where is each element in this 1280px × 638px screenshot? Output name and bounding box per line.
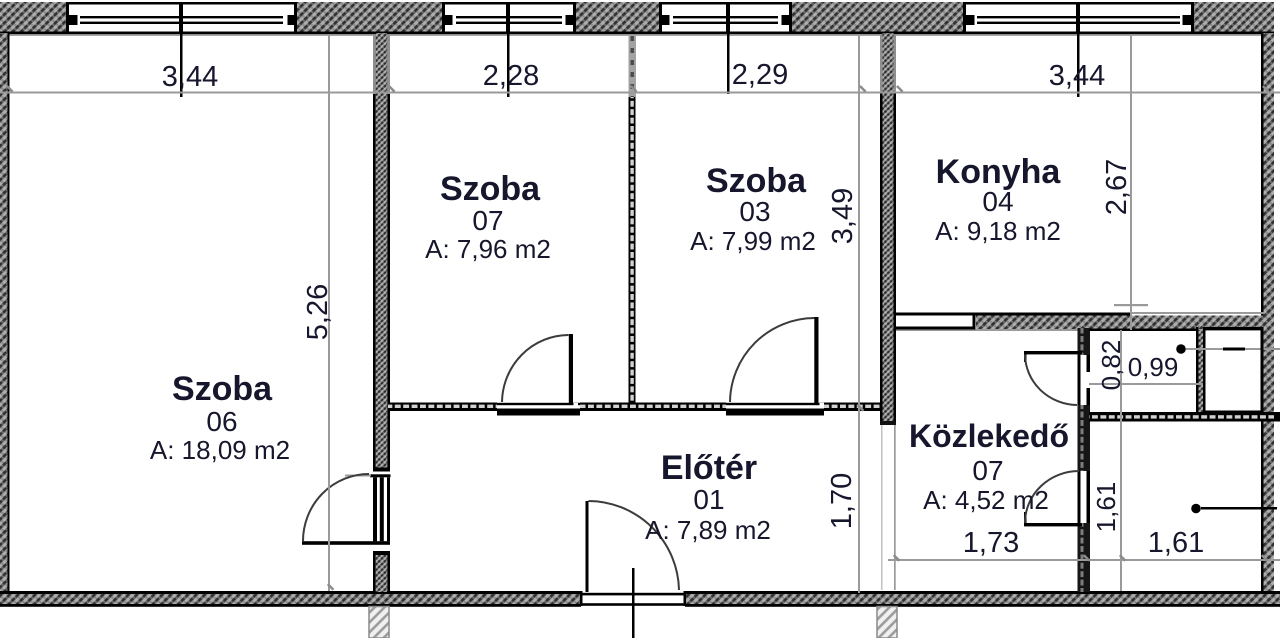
- svg-text:2,28: 2,28: [483, 60, 539, 92]
- svg-text:1,73: 1,73: [963, 527, 1019, 559]
- svg-text:04: 04: [982, 186, 1013, 217]
- svg-text:3,49: 3,49: [827, 188, 859, 244]
- svg-text:A: 7,89 m2: A: 7,89 m2: [645, 515, 771, 545]
- svg-text:3,44: 3,44: [1049, 60, 1105, 92]
- svg-text:3,44: 3,44: [162, 61, 218, 93]
- svg-text:07: 07: [972, 455, 1003, 486]
- svg-text:A: 18,09 m2: A: 18,09 m2: [150, 435, 290, 465]
- svg-text:1,70: 1,70: [826, 473, 858, 529]
- svg-text:A: 4,52 m2: A: 4,52 m2: [923, 485, 1049, 515]
- svg-text:Szoba: Szoba: [172, 370, 273, 408]
- svg-text:03: 03: [739, 196, 770, 227]
- svg-text:5,26: 5,26: [302, 284, 334, 340]
- svg-text:06: 06: [206, 406, 237, 437]
- svg-text:Szoba: Szoba: [440, 170, 541, 208]
- svg-text:A: 9,18 m2: A: 9,18 m2: [935, 216, 1061, 246]
- svg-text:1,61: 1,61: [1091, 482, 1121, 533]
- svg-text:A: 7,96 m2: A: 7,96 m2: [425, 234, 551, 264]
- svg-text:2,29: 2,29: [732, 59, 788, 91]
- svg-text:0,82: 0,82: [1096, 340, 1126, 391]
- svg-text:Közlekedő: Közlekedő: [909, 418, 1069, 454]
- svg-text:0,99: 0,99: [1128, 352, 1179, 382]
- svg-text:1,61: 1,61: [1148, 527, 1204, 559]
- svg-text:A: 7,99 m2: A: 7,99 m2: [690, 226, 816, 256]
- svg-text:2,67: 2,67: [1101, 159, 1133, 215]
- svg-text:Szoba: Szoba: [706, 162, 807, 200]
- svg-text:Előtér: Előtér: [661, 449, 757, 487]
- svg-text:01: 01: [693, 484, 724, 515]
- svg-text:07: 07: [472, 205, 503, 236]
